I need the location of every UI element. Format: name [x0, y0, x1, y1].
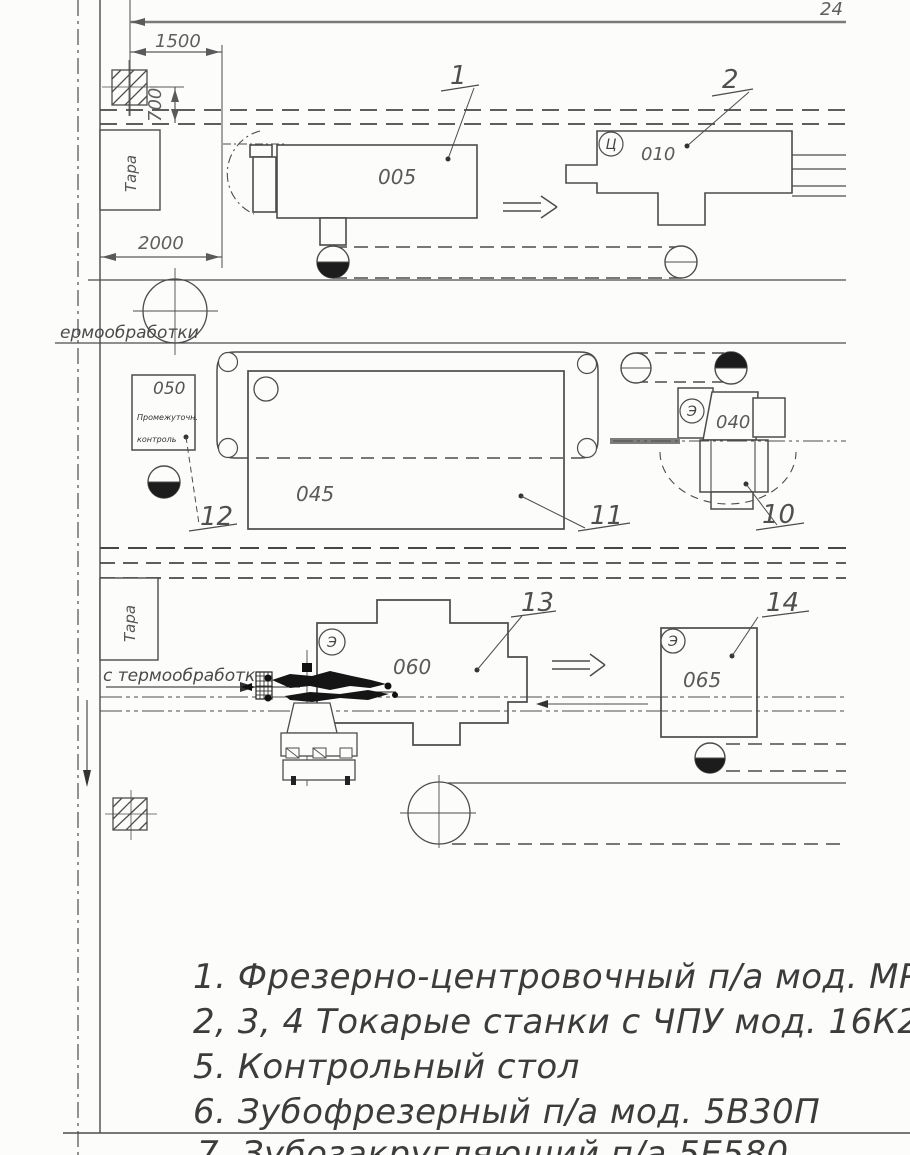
to-thermo-note: ермообработки: [60, 323, 199, 343]
flow-arrow-2: [552, 654, 605, 676]
column-bottom: [105, 790, 157, 840]
drawing-sheet: 24 1500 2000 700 Тара Тара 005: [0, 0, 910, 1155]
bottom-right-lines: [448, 744, 846, 844]
machine-005: [223, 131, 477, 245]
roller-below-065: [695, 743, 725, 773]
roller-below-050: [148, 466, 180, 498]
dim-text-24: 24: [820, 0, 843, 20]
callout-2-number: 2: [722, 65, 739, 95]
tara-label-top: Тара: [122, 155, 140, 192]
machine-040-label: 040: [716, 412, 750, 433]
flow-arrow-1: [503, 196, 557, 218]
utility-symbol-010: Ц: [606, 137, 617, 153]
machine-010-label: 010: [641, 144, 675, 165]
dim-text-1500: 1500: [155, 31, 201, 52]
callout-10-number: 10: [762, 500, 795, 530]
legend: 1. Фрезерно-центровочный п/а мод. МР-76 …: [193, 957, 910, 1155]
robot-pedestal: [287, 703, 337, 733]
legend-line-5: 7. Зубозакругляющий п/а 5Е580: [197, 1134, 789, 1155]
table-045-label: 045: [296, 482, 334, 506]
tara-label-bottom: Тара: [121, 605, 139, 642]
control-box-050: 050 Промежуточн. контроль: [132, 375, 198, 450]
dim-text-700: 700: [145, 88, 166, 122]
legend-line-2: 2, 3, 4 Токарые станки с ЧПУ мод. 16К20Ф…: [193, 1002, 910, 1042]
utility-symbol-040: Э: [686, 404, 697, 420]
roller-conveyor-1: [317, 246, 697, 278]
roller-conveyor-040: [621, 352, 747, 384]
box-050-label: 050: [153, 379, 185, 399]
machine-005-label: 005: [378, 165, 416, 189]
box-050-text2: контроль: [137, 435, 177, 444]
tara-box-bottom: Тара: [100, 578, 158, 660]
wall-flow-arrow: [83, 700, 91, 787]
utility-symbol-060: Э: [326, 635, 337, 651]
callout-1-number: 1: [450, 61, 467, 91]
legend-line-4: 6. Зубофрезерный п/а мод. 5В30П: [193, 1092, 820, 1132]
callout-12-number: 12: [200, 502, 233, 532]
utility-symbol-065: Э: [667, 634, 678, 650]
callout-11-number: 11: [590, 501, 623, 531]
legend-line-1: 1. Фрезерно-центровочный п/а мод. МР-76: [193, 957, 910, 997]
machine-005-body: [277, 145, 477, 218]
machine-065-label: 065: [683, 668, 721, 692]
floor-plan-drawing: 24 1500 2000 700 Тара Тара 005: [0, 0, 910, 1155]
dim-text-2000: 2000: [138, 233, 184, 254]
box-050-text1: Промежуточн.: [137, 413, 198, 422]
tara-box-top: Тара: [100, 130, 160, 210]
junction-circle-2: [400, 775, 476, 848]
legend-line-3: 5. Контрольный стол: [193, 1047, 580, 1087]
machine-060-label: 060: [393, 655, 431, 679]
callout-13-number: 13: [521, 588, 554, 618]
callout-14-number: 14: [766, 588, 799, 618]
